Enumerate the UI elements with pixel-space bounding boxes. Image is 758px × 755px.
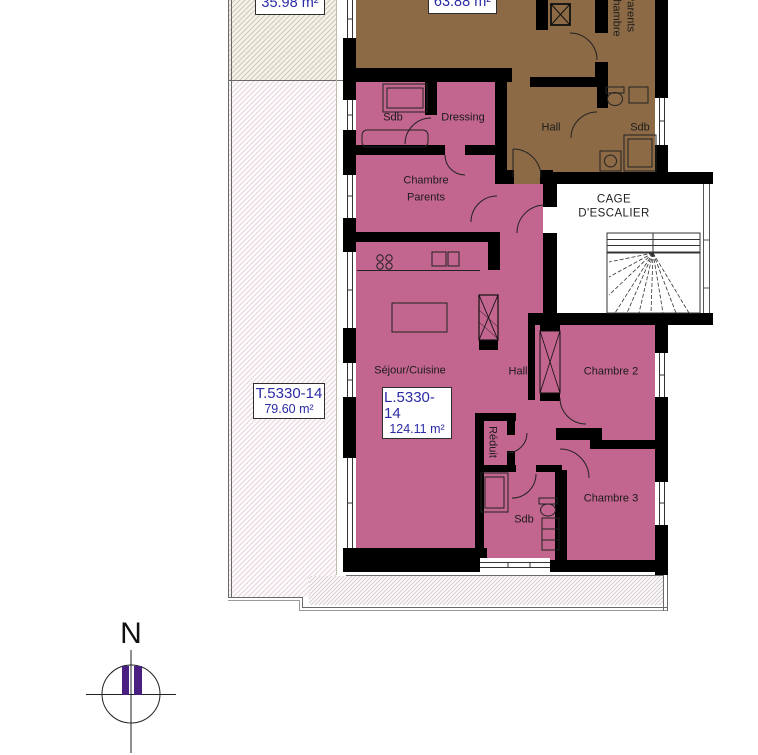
room-label-brown-chambre-parents-1: Chambre [611, 0, 622, 37]
stairs [607, 233, 700, 313]
apartment-brown-area-badge: 63.88 m² [428, 0, 497, 14]
terrace-upper-area: 35.98 m² [261, 0, 318, 11]
terrace-unit-badge: T.5330-14 79.60 m² [253, 383, 325, 419]
room-label-reduit: Réduit [487, 426, 498, 458]
apartment-unit-badge: L.5330-14 124.11 m² [382, 387, 452, 439]
floor-plan-drawing [0, 0, 758, 755]
room-label-brown-chambre-parents-2: Parents [625, 0, 636, 32]
terrace-upper-area-badge: 35.98 m² [255, 0, 325, 15]
stairwell-label-2: D'ESCALIER [578, 208, 649, 220]
floor-plan: 35.98 m² 63.88 m² Chambre Parents Hall S… [0, 0, 758, 755]
apartment-unit-area: 124.11 m² [389, 422, 444, 436]
stairwell-label-1: CAGE [597, 194, 631, 206]
room-label-chambre3: Chambre 3 [584, 494, 638, 505]
room-label-brown-hall: Hall [542, 123, 561, 134]
room-label-chambre2: Chambre 2 [584, 367, 638, 378]
terrace-unit-area: 79.60 m² [264, 402, 313, 416]
room-label-chambre-parents-2: Parents [407, 193, 445, 204]
room-label-sdb: Sdb [383, 113, 403, 124]
room-label-brown-sdb: Sdb [630, 123, 650, 134]
room-label-dressing: Dressing [441, 113, 484, 124]
room-label-sdb2: Sdb [514, 515, 534, 526]
room-label-hall: Hall [509, 367, 528, 378]
room-label-chambre-parents-1: Chambre [403, 176, 448, 187]
terrace-unit-id: T.5330-14 [256, 386, 323, 402]
room-label-sejour-cuisine: Séjour/Cuisine [374, 366, 446, 377]
compass-icon [86, 650, 176, 753]
stairwell-facade [703, 184, 710, 313]
apartment-unit-id: L.5330-14 [384, 390, 450, 422]
apartment-brown-area: 63.88 m² [434, 0, 491, 10]
compass-north-label: N [120, 617, 142, 651]
